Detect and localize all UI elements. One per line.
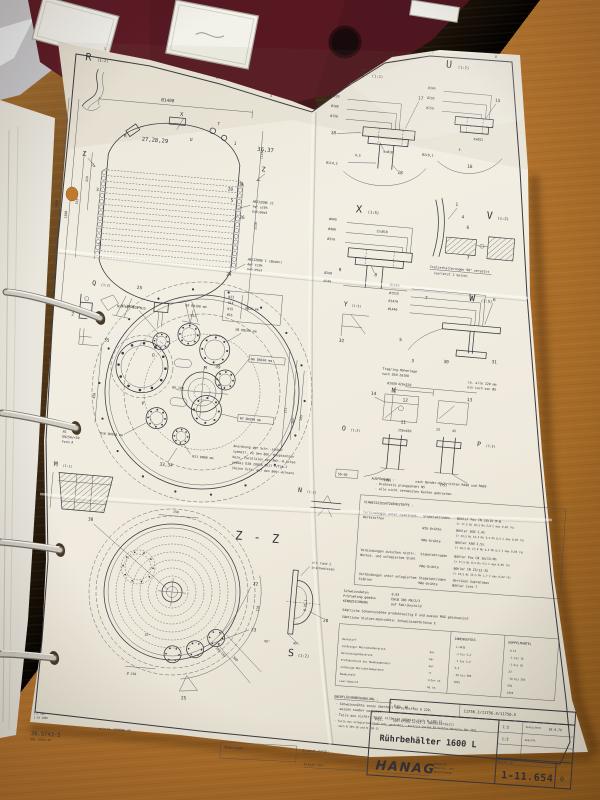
photo-vignette bbox=[0, 0, 600, 800]
photo-of-technical-drawing: 1 2 3 4 5 6 7 8 R (1:2) Ø1400 X T U R 27… bbox=[0, 0, 600, 800]
scene-svg: 1 2 3 4 5 6 7 8 R (1:2) Ø1400 X T U R 27… bbox=[0, 0, 600, 800]
